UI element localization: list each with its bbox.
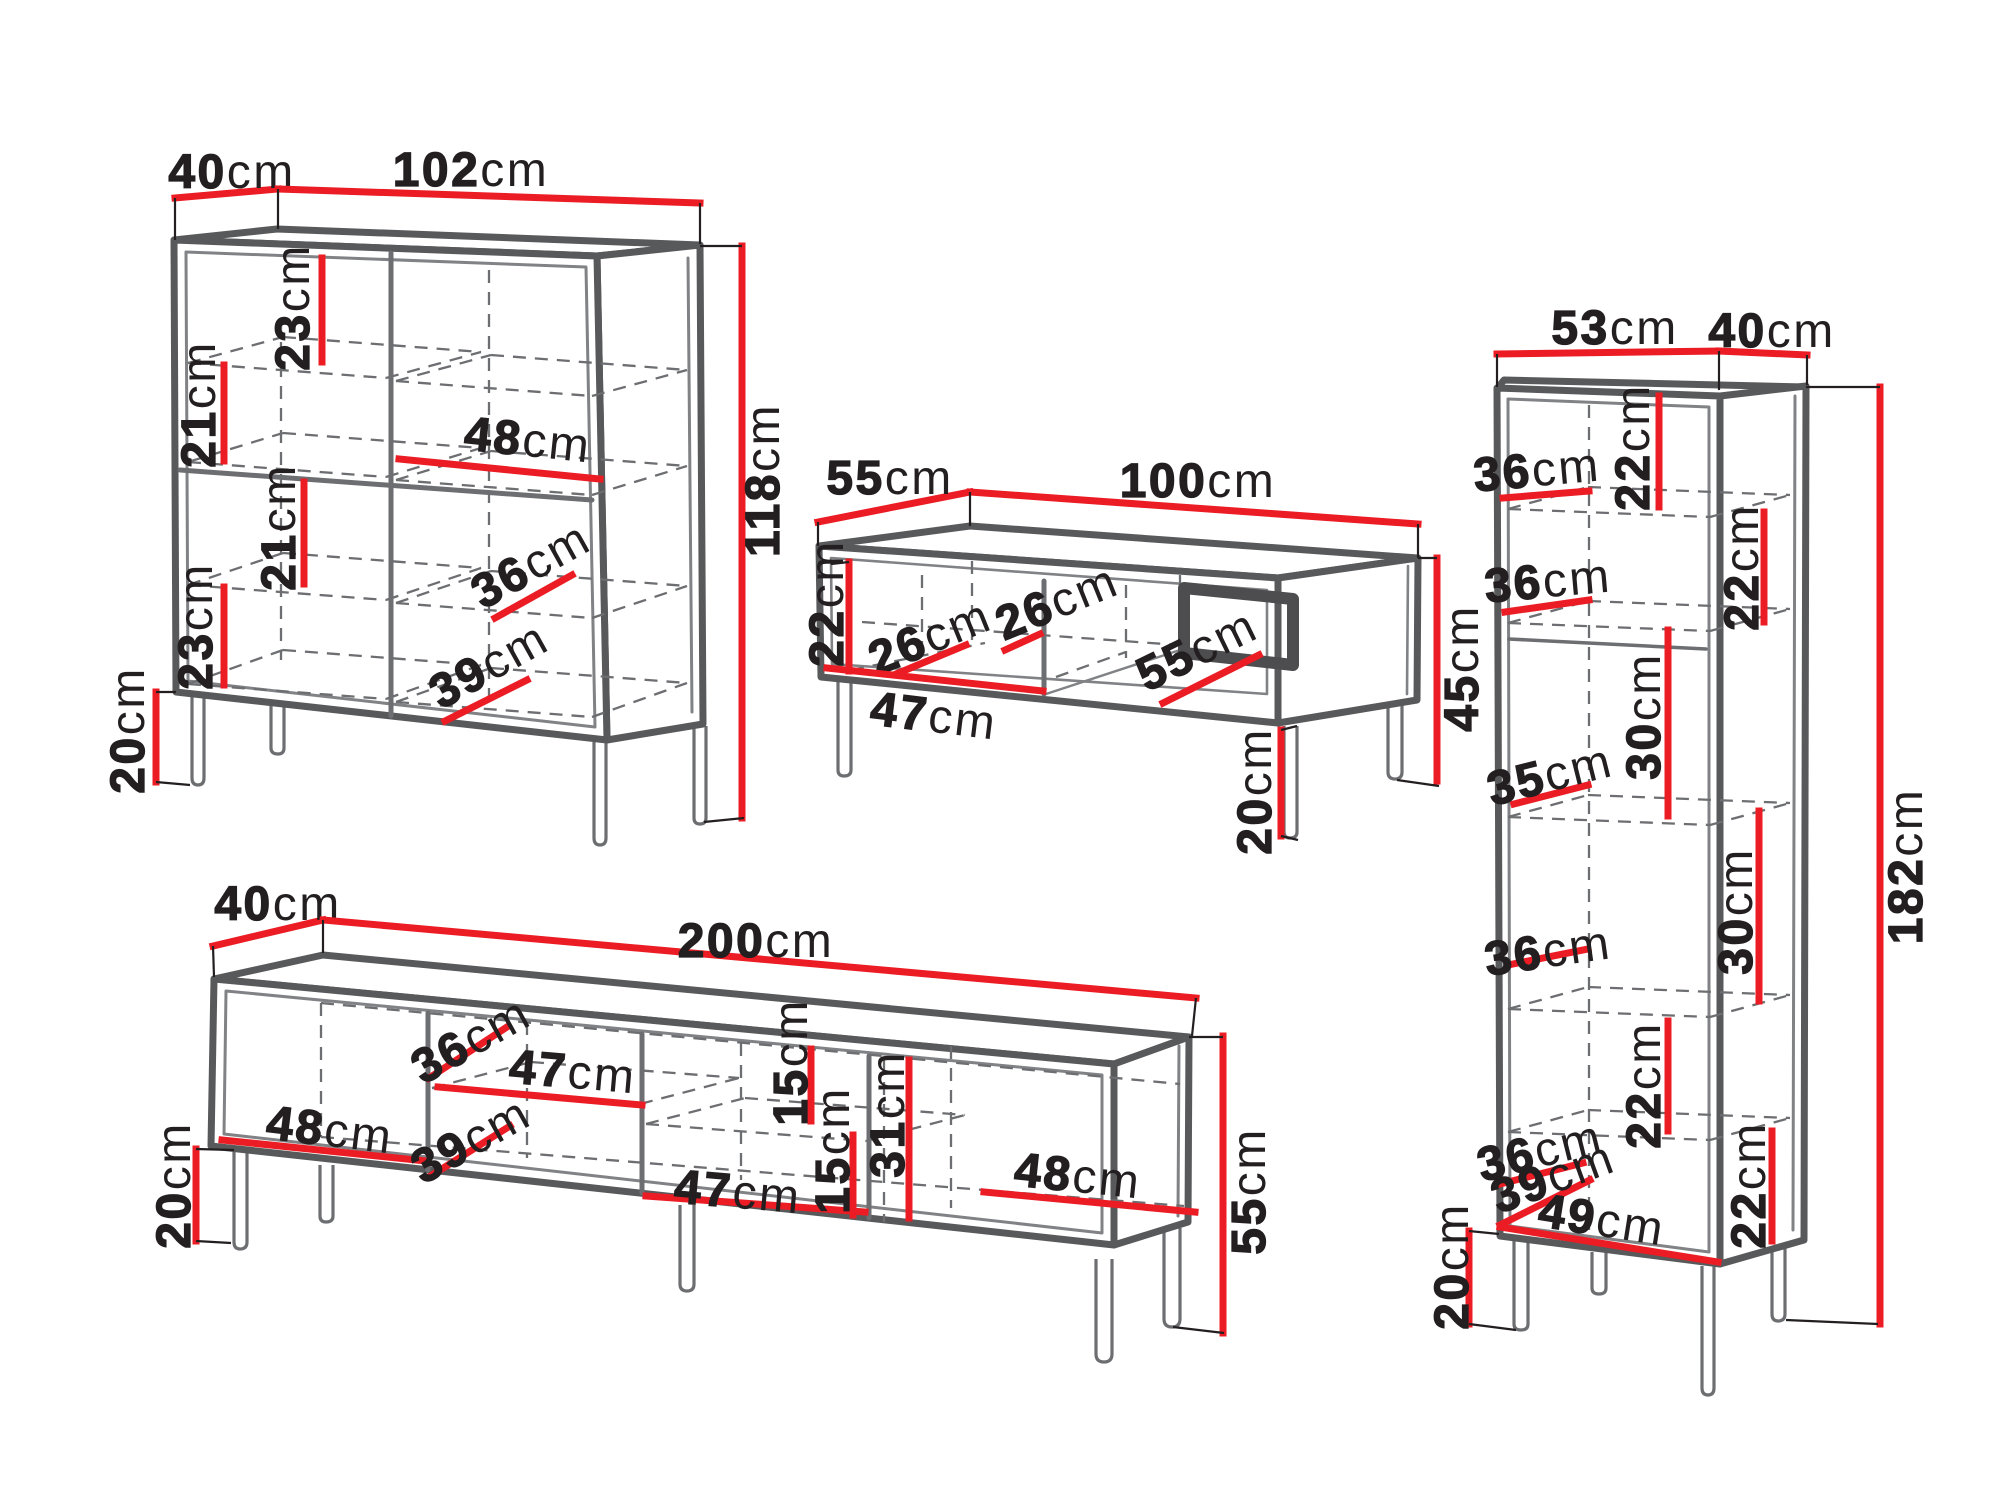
svg-text:22cm: 22cm	[1723, 1121, 1776, 1248]
svg-text:200cm: 200cm	[678, 915, 835, 968]
svg-text:20cm: 20cm	[1426, 1202, 1479, 1329]
svg-text:55cm: 55cm	[826, 452, 953, 505]
svg-text:20cm: 20cm	[148, 1121, 201, 1248]
svg-text:23cm: 23cm	[170, 562, 223, 689]
svg-text:102cm: 102cm	[393, 144, 550, 197]
svg-text:100cm: 100cm	[1120, 455, 1277, 508]
svg-text:47cm: 47cm	[672, 1160, 804, 1224]
svg-text:22cm: 22cm	[801, 539, 854, 666]
svg-text:53cm: 53cm	[1551, 302, 1678, 355]
svg-text:21cm: 21cm	[173, 340, 226, 467]
svg-text:45cm: 45cm	[1436, 604, 1489, 731]
svg-text:36cm: 36cm	[1471, 438, 1603, 502]
svg-text:118cm: 118cm	[737, 403, 790, 557]
svg-text:31cm: 31cm	[862, 1050, 915, 1177]
svg-text:47cm: 47cm	[507, 1040, 639, 1104]
svg-text:15cm: 15cm	[807, 1086, 860, 1213]
svg-text:30cm: 30cm	[1710, 847, 1763, 974]
svg-text:55cm: 55cm	[1223, 1127, 1276, 1254]
svg-text:30cm: 30cm	[1618, 652, 1671, 779]
svg-text:40cm: 40cm	[1708, 305, 1835, 358]
svg-text:21cm: 21cm	[253, 463, 306, 590]
svg-text:182cm: 182cm	[1880, 788, 1933, 945]
svg-text:22cm: 22cm	[1618, 1021, 1671, 1148]
svg-text:22cm: 22cm	[1716, 503, 1769, 630]
svg-text:36cm: 36cm	[1482, 549, 1614, 613]
svg-text:22cm: 22cm	[1607, 383, 1660, 510]
svg-text:20cm: 20cm	[1229, 727, 1282, 854]
svg-text:23cm: 23cm	[267, 243, 320, 370]
svg-text:20cm: 20cm	[102, 666, 155, 793]
